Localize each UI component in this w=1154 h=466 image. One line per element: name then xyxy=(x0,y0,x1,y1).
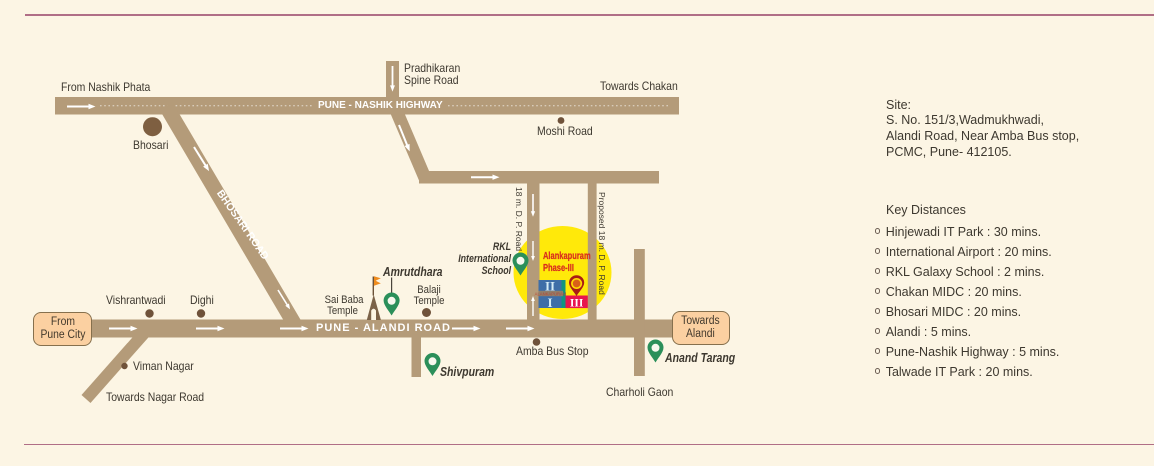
svg-text:I: I xyxy=(547,295,552,310)
svg-text:III: III xyxy=(570,297,584,309)
svg-text:II: II xyxy=(545,279,555,294)
